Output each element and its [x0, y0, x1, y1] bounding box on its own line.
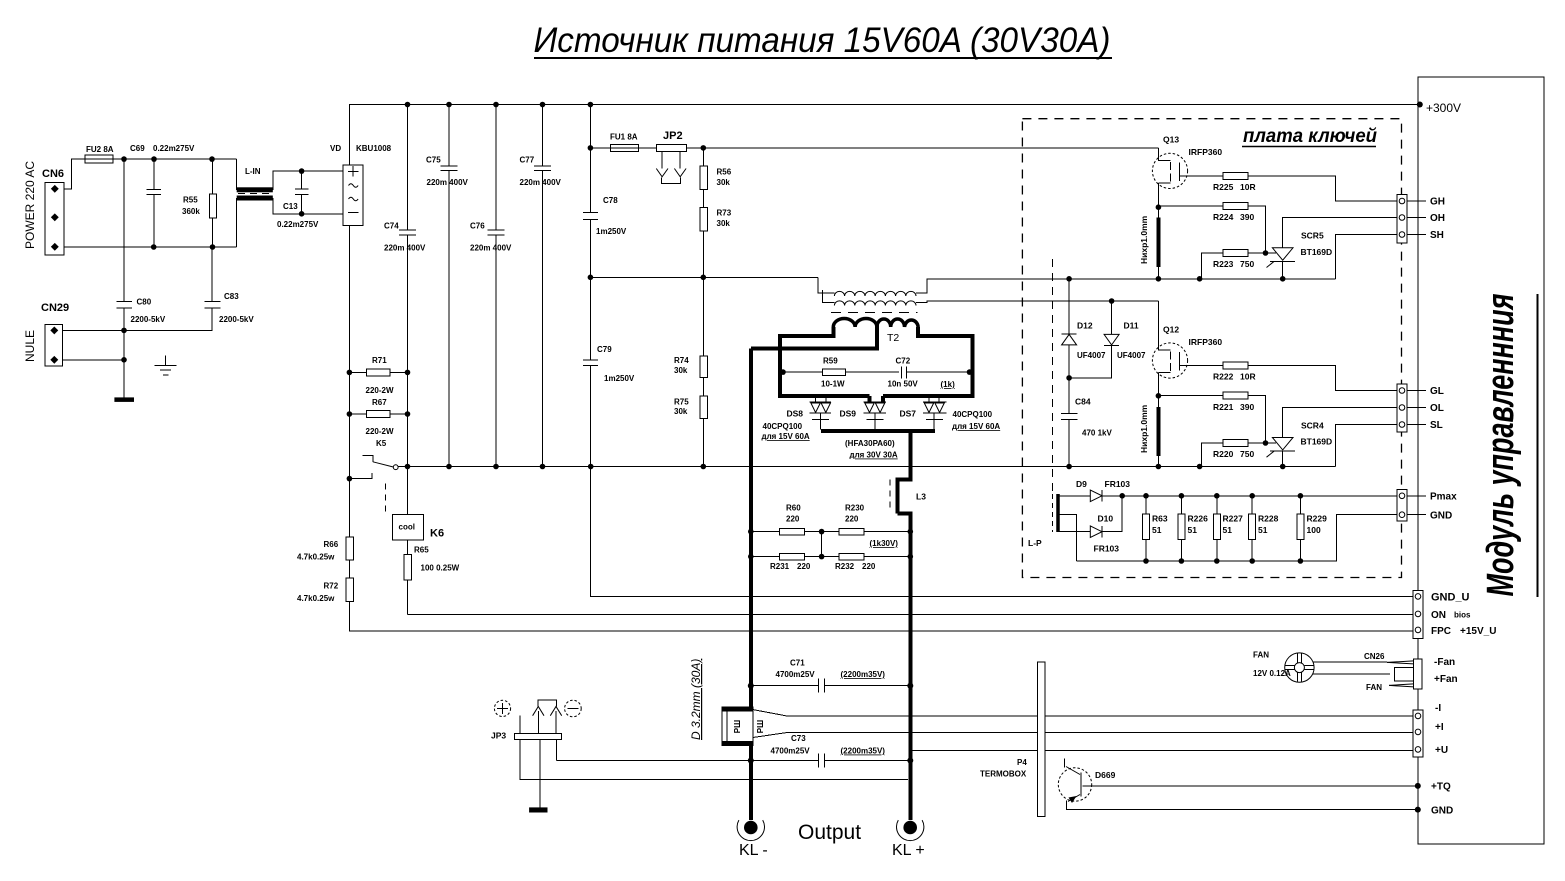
svg-text:R60: R60	[786, 504, 801, 513]
svg-text:C84: C84	[1075, 397, 1091, 407]
svg-text:JP3: JP3	[491, 731, 506, 741]
svg-text:100 0.25W: 100 0.25W	[421, 564, 460, 573]
svg-text:C13: C13	[283, 202, 298, 211]
svg-text:220m 400V: 220m 400V	[427, 178, 469, 187]
svg-text:FAN: FAN	[1253, 651, 1269, 660]
svg-text:0.22m275V: 0.22m275V	[153, 144, 195, 153]
svg-text:750: 750	[1240, 449, 1254, 459]
svg-text:РШ: РШ	[733, 720, 742, 733]
svg-text:K6: K6	[430, 528, 444, 540]
svg-text:C72: C72	[896, 357, 911, 366]
svg-text:cool: cool	[399, 523, 415, 532]
svg-text:2200-5kV: 2200-5kV	[219, 315, 254, 324]
svg-text:R63: R63	[1152, 514, 1168, 524]
svg-text:4700m25V: 4700m25V	[771, 747, 811, 756]
svg-text:0.22m275V: 0.22m275V	[277, 220, 319, 229]
svg-text:R56: R56	[717, 168, 732, 177]
svg-text:R231: R231	[770, 562, 790, 571]
svg-text:SH: SH	[1430, 230, 1444, 241]
svg-text:D11: D11	[1124, 321, 1139, 331]
svg-text:1m250V: 1m250V	[604, 374, 635, 383]
svg-text:плата ключей: плата ключей	[1243, 126, 1377, 147]
svg-text:KL +: KL +	[892, 842, 925, 859]
svg-text:51: 51	[1223, 525, 1233, 535]
svg-text:10n 50V: 10n 50V	[888, 380, 919, 389]
svg-text:1m250V: 1m250V	[596, 227, 627, 236]
svg-text:R66: R66	[324, 540, 339, 549]
svg-text:K5: K5	[376, 439, 387, 448]
svg-text:R232: R232	[835, 562, 855, 571]
svg-text:470 1kV: 470 1kV	[1082, 429, 1112, 438]
svg-text:360k: 360k	[182, 207, 200, 216]
svg-text:IRFP360: IRFP360	[1189, 337, 1223, 347]
svg-text:GL: GL	[1430, 386, 1444, 397]
svg-text:R227: R227	[1223, 514, 1244, 524]
svg-text:(2200m35V): (2200m35V)	[841, 670, 886, 679]
svg-text:51: 51	[1152, 525, 1162, 535]
svg-text:IRFP360: IRFP360	[1189, 147, 1223, 157]
svg-text:Pmax: Pmax	[1430, 492, 1457, 503]
svg-text:51: 51	[1188, 525, 1198, 535]
svg-text:KL -: KL -	[739, 842, 768, 859]
svg-text:C73: C73	[791, 734, 806, 743]
svg-text:R221: R221	[1213, 402, 1234, 412]
svg-text:30k: 30k	[674, 407, 688, 416]
svg-text:R220: R220	[1213, 449, 1234, 459]
svg-text:L-IN: L-IN	[245, 167, 261, 176]
svg-text:C76: C76	[470, 222, 485, 231]
svg-text:C71: C71	[790, 659, 805, 668]
svg-text:R59: R59	[823, 357, 838, 366]
svg-text:+15V_U: +15V_U	[1460, 626, 1496, 637]
svg-text:для 30V 30A: для 30V 30A	[850, 451, 898, 460]
svg-text:R55: R55	[183, 196, 198, 205]
svg-text:(1k30V): (1k30V)	[870, 539, 899, 548]
svg-text:R229: R229	[1307, 514, 1328, 524]
svg-text:JP2: JP2	[663, 130, 683, 142]
svg-text:30k: 30k	[674, 366, 688, 375]
svg-text:для 15V 60A: для 15V 60A	[952, 422, 1000, 431]
svg-text:R65: R65	[414, 546, 429, 555]
svg-text:POWER 220 AC: POWER 220 AC	[23, 161, 37, 249]
svg-text:CN29: CN29	[41, 302, 69, 314]
svg-text:SCR5: SCR5	[1301, 231, 1324, 241]
svg-text:C75: C75	[426, 156, 441, 165]
svg-text:30k: 30k	[717, 219, 731, 228]
svg-text:40CPQ100: 40CPQ100	[953, 410, 993, 419]
svg-text:FAN: FAN	[1366, 683, 1382, 692]
svg-text:CN26: CN26	[1364, 652, 1385, 661]
svg-text:R75: R75	[674, 398, 689, 407]
svg-text:KBU1008: KBU1008	[356, 144, 392, 153]
svg-text:BT169D: BT169D	[1301, 247, 1333, 257]
svg-text:РШ: РШ	[756, 720, 765, 733]
svg-text:30k: 30k	[717, 178, 731, 187]
svg-text:FU1 8A: FU1 8A	[610, 133, 638, 142]
svg-text:SCR4: SCR4	[1301, 421, 1324, 431]
svg-text:GND: GND	[1430, 511, 1452, 522]
svg-text:D10: D10	[1098, 514, 1114, 524]
svg-text:L3: L3	[916, 492, 926, 502]
svg-text:220: 220	[797, 562, 811, 571]
svg-text:+U: +U	[1435, 745, 1448, 756]
svg-text:+I: +I	[1435, 722, 1444, 733]
svg-text:GND: GND	[1431, 806, 1453, 817]
svg-text:R228: R228	[1258, 514, 1279, 524]
svg-text:DS8: DS8	[787, 409, 804, 419]
svg-text:bios: bios	[1454, 611, 1471, 620]
svg-text:4700m25V: 4700m25V	[776, 670, 816, 679]
svg-text:VD: VD	[330, 144, 341, 153]
svg-text:220m 400V: 220m 400V	[520, 178, 562, 187]
svg-text:220: 220	[786, 515, 800, 524]
svg-text:C78: C78	[603, 196, 618, 205]
svg-text:10-1W: 10-1W	[821, 380, 845, 389]
svg-text:R222: R222	[1213, 372, 1234, 382]
svg-text:+300V: +300V	[1426, 101, 1461, 115]
svg-text:FPC: FPC	[1431, 626, 1451, 637]
svg-text:NULE: NULE	[23, 330, 37, 362]
svg-text:для 15V 60A: для 15V 60A	[762, 432, 810, 441]
svg-text:220m 400V: 220m 400V	[384, 244, 426, 253]
svg-text:220-2W: 220-2W	[366, 386, 394, 395]
svg-text:CN6: CN6	[42, 168, 64, 180]
svg-text:Нихр1.0mm: Нихр1.0mm	[1139, 215, 1149, 264]
svg-text:DS7: DS7	[900, 409, 917, 419]
svg-text:R67: R67	[372, 398, 387, 407]
svg-text:220: 220	[862, 562, 876, 571]
svg-text:+TQ: +TQ	[1431, 782, 1451, 793]
svg-text:C77: C77	[520, 156, 535, 165]
svg-text:FR103: FR103	[1105, 479, 1131, 489]
svg-text:4.7k0.25w: 4.7k0.25w	[297, 594, 335, 603]
svg-text:C83: C83	[224, 292, 239, 301]
svg-text:40CPQ100: 40CPQ100	[763, 422, 803, 431]
svg-text:Модуль управленнния: Модуль управленнния	[1480, 294, 1522, 597]
svg-text:D12: D12	[1077, 321, 1093, 331]
svg-text:220: 220	[845, 515, 859, 524]
svg-text:220-2W: 220-2W	[366, 427, 394, 436]
svg-text:GH: GH	[1430, 197, 1445, 208]
svg-text:390: 390	[1240, 212, 1254, 222]
svg-text:4.7k0.25w: 4.7k0.25w	[297, 553, 335, 562]
svg-text:220m 400V: 220m 400V	[470, 244, 512, 253]
svg-text:C80: C80	[137, 298, 152, 307]
svg-text:OH: OH	[1430, 213, 1445, 224]
svg-text:390: 390	[1240, 402, 1254, 412]
svg-text:+Fan: +Fan	[1434, 674, 1458, 685]
svg-text:BT169D: BT169D	[1301, 437, 1333, 447]
svg-text:51: 51	[1258, 525, 1268, 535]
svg-text:ON: ON	[1431, 610, 1446, 621]
svg-text:Источник питания 15V60A (30V30: Источник питания 15V60A (30V30A)	[534, 21, 1111, 60]
svg-text:T2: T2	[887, 332, 899, 344]
svg-text:-I: -I	[1435, 703, 1441, 714]
svg-text:R223: R223	[1213, 259, 1234, 269]
svg-text:FU2 8A: FU2 8A	[86, 145, 114, 154]
svg-text:(1k): (1k)	[941, 380, 956, 389]
svg-text:10R: 10R	[1240, 182, 1256, 192]
svg-text:750: 750	[1240, 259, 1254, 269]
svg-text:12V 0.12A: 12V 0.12A	[1253, 669, 1291, 678]
svg-text:R74: R74	[674, 356, 689, 365]
svg-text:(2200m35V): (2200m35V)	[841, 747, 886, 756]
svg-text:C79: C79	[597, 345, 612, 354]
svg-text:P4: P4	[1017, 758, 1027, 767]
svg-text:R224: R224	[1213, 212, 1234, 222]
svg-text:-Fan: -Fan	[1434, 657, 1455, 668]
svg-text:L-P: L-P	[1028, 538, 1042, 548]
svg-text:UF4007: UF4007	[1077, 351, 1106, 360]
svg-text:100: 100	[1307, 525, 1321, 535]
svg-text:UF4007: UF4007	[1117, 351, 1146, 360]
svg-text:GND_U: GND_U	[1431, 592, 1470, 604]
svg-text:Q12: Q12	[1163, 325, 1179, 335]
svg-text:FR103: FR103	[1094, 544, 1120, 554]
svg-text:D9: D9	[1076, 479, 1087, 489]
svg-text:Output: Output	[798, 821, 861, 844]
svg-text:DS9: DS9	[840, 409, 857, 419]
svg-text:C69: C69	[130, 144, 145, 153]
svg-text:R73: R73	[717, 209, 732, 218]
svg-text:R72: R72	[324, 582, 339, 591]
svg-text:SL: SL	[1430, 420, 1443, 431]
svg-text:Q13: Q13	[1163, 135, 1179, 145]
svg-text:10R: 10R	[1240, 372, 1256, 382]
svg-text:D669: D669	[1095, 770, 1116, 780]
svg-text:R226: R226	[1188, 514, 1209, 524]
svg-text:(HFA30PA60): (HFA30PA60)	[845, 439, 895, 448]
svg-text:D 3.2mm (30A): D 3.2mm (30A)	[689, 659, 703, 740]
svg-text:TERMOBOX: TERMOBOX	[980, 770, 1027, 779]
svg-text:OL: OL	[1430, 403, 1444, 414]
svg-text:R225: R225	[1213, 182, 1234, 192]
svg-text:C74: C74	[384, 222, 399, 231]
svg-text:Нихр1.0mm: Нихр1.0mm	[1139, 404, 1149, 453]
svg-text:2200-5kV: 2200-5kV	[131, 315, 166, 324]
svg-text:R230: R230	[845, 504, 865, 513]
svg-text:R71: R71	[372, 356, 387, 365]
